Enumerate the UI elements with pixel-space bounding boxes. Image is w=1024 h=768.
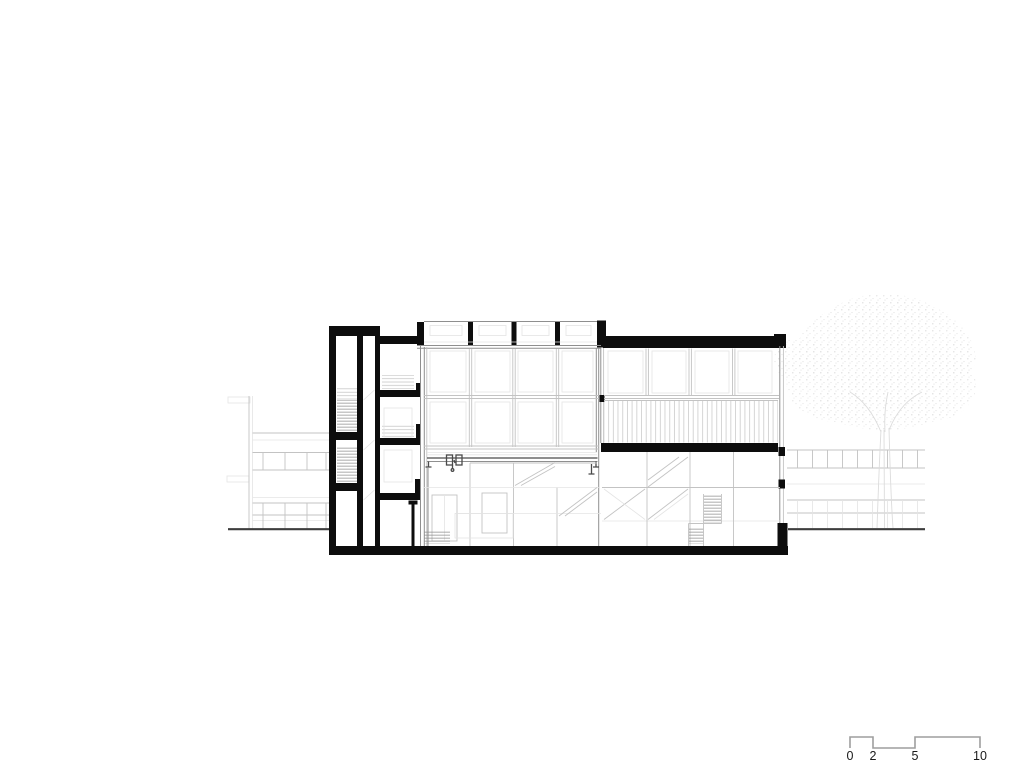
wing-louver-band [604,401,778,443]
scale-bar-line [850,737,980,748]
tree-canopy [774,294,976,430]
hall-interior [424,463,601,547]
wing-stair [689,494,722,546]
crane-pendant [589,464,595,474]
main-hall [417,321,606,547]
wing-roof-parapet [774,334,786,348]
wing-floor-slab [601,443,778,452]
right-wing [600,334,788,546]
base-slab [329,546,788,555]
right-background-elevation [787,450,925,528]
architectural-section-drawing: 0 2 5 10 [0,0,1024,768]
gallery-corridor [378,344,421,546]
scale-bar: 0 2 5 10 [847,737,987,763]
scale-label-10: 10 [973,749,987,763]
clerestory [417,321,606,349]
wing-glazing [604,349,779,399]
scale-label-2: 2 [870,749,877,763]
hall-glazing-grid [424,347,599,546]
drawing-sheet: 0 2 5 10 [0,0,1024,768]
left-background-elevation [227,396,331,529]
scale-label-5: 5 [912,749,919,763]
scale-label-0: 0 [847,749,854,763]
wing-roof-slab [603,336,775,348]
wing-lower-interior [602,452,780,546]
